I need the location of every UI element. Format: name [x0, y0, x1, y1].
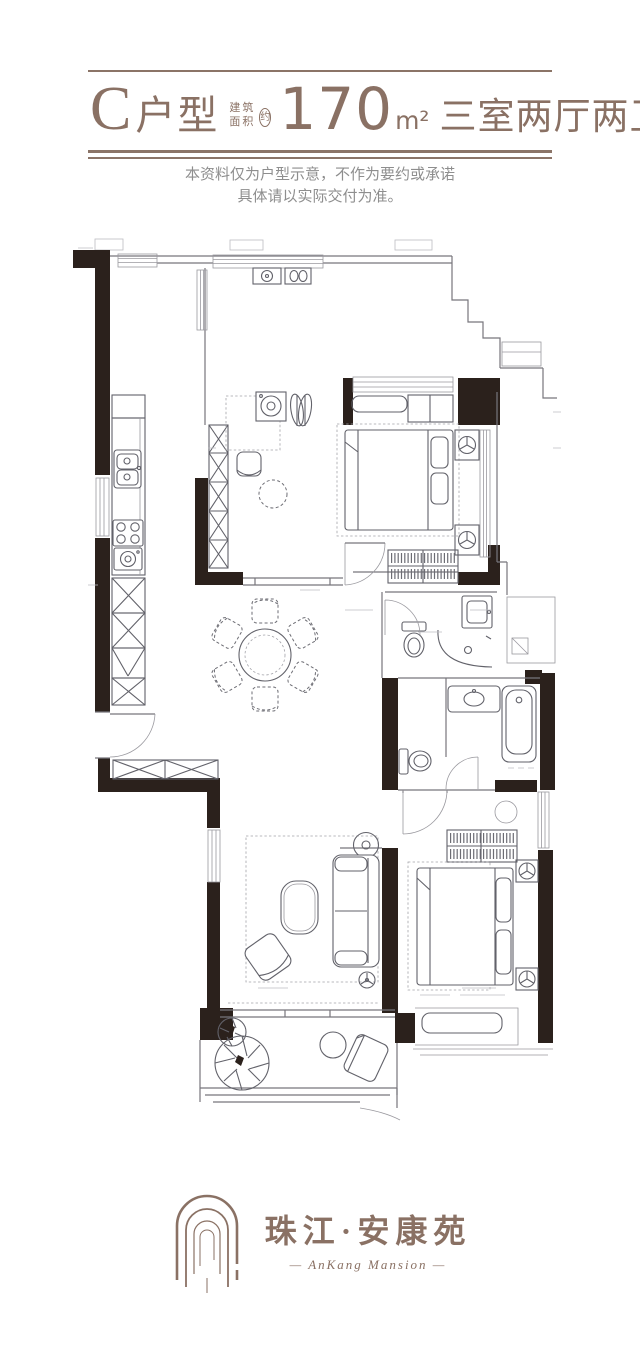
balcony — [215, 1018, 390, 1090]
balcony-table — [320, 1032, 346, 1058]
armchair — [242, 931, 293, 983]
floor-lamp — [359, 972, 375, 988]
master-bedroom — [403, 790, 538, 1033]
dining-chairs — [210, 599, 320, 711]
bathtub — [502, 686, 536, 762]
brand-name-cn: 珠江·安康苑 — [265, 1212, 472, 1250]
laundry-machine — [256, 392, 286, 421]
coffee-table — [281, 881, 318, 934]
toilet — [399, 749, 431, 774]
mini-sink — [285, 268, 311, 284]
nightstand-lamp — [516, 860, 538, 882]
nightstand-lamp — [516, 968, 538, 990]
kitchen-sink — [114, 450, 141, 488]
decor-plants — [289, 393, 314, 427]
kitchen — [112, 395, 145, 575]
living-room — [228, 833, 379, 1004]
balcony-chair — [342, 1033, 390, 1084]
bay-window-bench — [422, 1013, 502, 1033]
sofa — [333, 855, 379, 967]
bedroom-2 — [337, 395, 479, 585]
shower — [438, 630, 492, 667]
brand-text-block: 珠江·安康苑 — AnKang Mansion — — [265, 1212, 472, 1273]
arch-logo-icon — [169, 1190, 245, 1294]
entry-door — [110, 714, 155, 757]
balcony-plant — [215, 1018, 269, 1090]
kitchen-stove — [113, 520, 143, 546]
guest-bathroom — [385, 596, 492, 667]
vanity — [448, 686, 500, 712]
mini-cooktop — [253, 268, 281, 284]
brand-logo: 珠江·安康苑 — AnKang Mansion — — [0, 1190, 640, 1294]
washbasin — [462, 596, 492, 628]
master-bathroom — [399, 686, 536, 789]
multipurpose-room — [226, 268, 314, 508]
kitchen-appliance — [114, 548, 142, 570]
bed-master — [417, 868, 513, 985]
toilet — [402, 622, 426, 657]
wardrobe-hangers — [447, 830, 517, 862]
bed-2 — [345, 430, 453, 530]
study-desk-chair — [237, 452, 287, 508]
balcony-railing — [200, 1088, 400, 1120]
floor-plan — [0, 0, 640, 1353]
wardrobe-hangers — [388, 550, 458, 583]
dining-table — [210, 599, 320, 711]
brand-name-en: — AnKang Mansion — — [265, 1257, 472, 1273]
